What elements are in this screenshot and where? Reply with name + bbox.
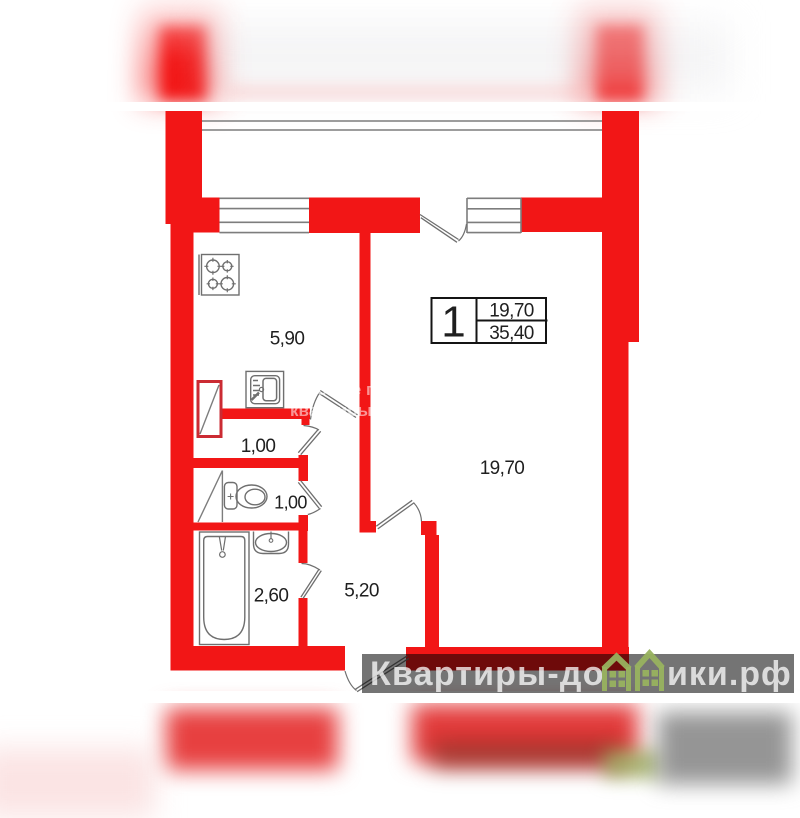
- svg-text:5,20: 5,20: [344, 581, 379, 602]
- svg-text:19,70: 19,70: [480, 458, 525, 479]
- svg-text:5,90: 5,90: [270, 329, 305, 350]
- svg-text:1,00: 1,00: [241, 436, 276, 457]
- svg-text:35,40: 35,40: [489, 323, 534, 344]
- svg-text:19,70: 19,70: [489, 301, 534, 322]
- svg-text:2,60: 2,60: [254, 586, 289, 607]
- svg-text:1,00: 1,00: [274, 493, 307, 513]
- svg-text:1: 1: [441, 298, 465, 347]
